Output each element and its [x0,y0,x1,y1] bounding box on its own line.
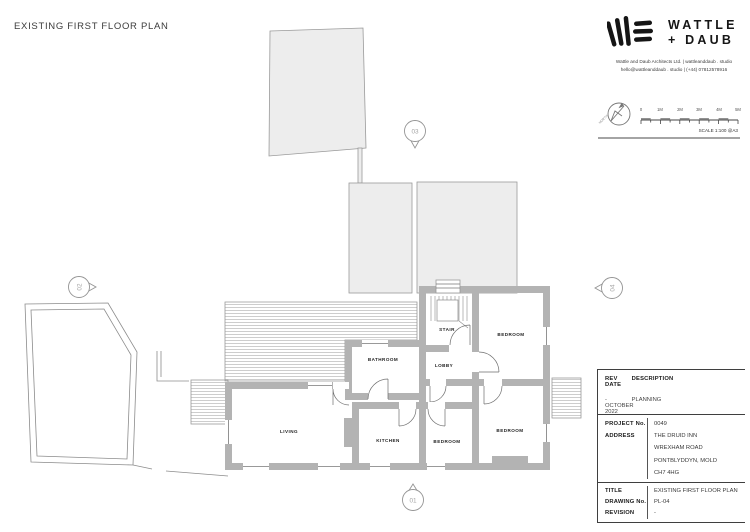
elevation-marker-02: 02 [69,277,97,298]
svg-text:5M: 5M [735,107,741,112]
room-label-lobby: LOBBY [435,363,453,368]
revision-date: OCTOBER 2022 [605,403,647,415]
scale-label: SCALE 1:100 @A3 [699,128,739,133]
revision-row: - PLANNING OCTOBER 2022 [598,397,745,415]
drawing-no-label: DRAWING No. [598,497,647,508]
drawing-sheet: STAIR BEDROOM BATHROOM LOBBY LIVING KITC… [0,0,750,532]
room-label-kitchen: KITCHEN [376,438,400,443]
address-label: ADDRESS [598,430,647,442]
date-header: DATE [605,382,647,388]
elevation-marker-04: 04 [595,278,623,299]
page-title: EXISTING FIRST FLOOR PLAN [14,21,169,32]
svg-text:01: 01 [409,497,417,504]
project-no-label: PROJECT No. [598,418,647,430]
title-block: REV DESCRIPTION DATE - PLANNING OCTOBER … [597,369,745,523]
room-label-bedroom-right: BEDROOM [496,428,523,433]
stair-treads [431,296,468,328]
svg-text:4M: 4M [716,107,722,112]
brand-contact-line1: Wattle and Daub Architects Ltd. | wattle… [600,58,748,66]
project-no-value: 0049 [647,418,745,430]
brand-name-line2: + DAUB [668,33,738,48]
elevation-marker-03: 03 [405,121,426,149]
brand-name-line1: WATTLE [668,18,738,33]
wattle-daub-logo-icon [607,13,655,53]
svg-text:0: 0 [640,107,643,112]
address-line1: THE DRUID INN [647,430,745,442]
project-info: PROJECT No. 0049 ADDRESS THE DRUID INN W… [598,415,745,482]
room-label-living: LIVING [280,429,298,434]
revision-table: REV DESCRIPTION DATE - PLANNING OCTOBER … [598,370,745,414]
address-line3: PONTBLYDDYN, MOLD [647,455,745,467]
svg-text:NORTH: NORTH [598,113,609,124]
brand-contact-line2: hello@wattleanddaub . studio | (+44) 078… [600,66,748,74]
revision-value: - [647,508,745,519]
elevation-marker-01: 01 [403,484,424,511]
svg-text:3M: 3M [696,107,702,112]
svg-text:04: 04 [609,284,616,292]
svg-text:1M: 1M [657,107,663,112]
address-line4: CH7 4HG [647,467,745,479]
title-value: EXISTING FIRST FLOOR PLAN [647,486,745,497]
svg-text:02: 02 [76,283,83,291]
revision-label: REVISION [598,508,647,519]
north-arrow: NORTH [598,103,630,125]
drawing-no-value: PL-04 [647,497,745,508]
outbuilding-roof [269,28,517,293]
svg-text:2M: 2M [677,107,683,112]
room-label-bedroom-top: BEDROOM [497,332,524,337]
room-label-bedroom-small: BEDROOM [433,439,460,444]
room-label-stair: STAIR [439,327,455,332]
brand-block: WATTLE + DAUB Wattle and Daub Architects… [600,13,748,74]
scale-bar: 0 1M 2M 3M 4M 5M SCALE 1:100 @A3 [640,107,742,133]
drawing-info: TITLE EXISTING FIRST FLOOR PLAN DRAWING … [598,483,745,522]
svg-text:03: 03 [411,128,419,135]
room-label-bathroom: BATHROOM [368,357,398,362]
title-label: TITLE [598,486,647,497]
address-line2: WREXHAM ROAD [647,442,745,454]
